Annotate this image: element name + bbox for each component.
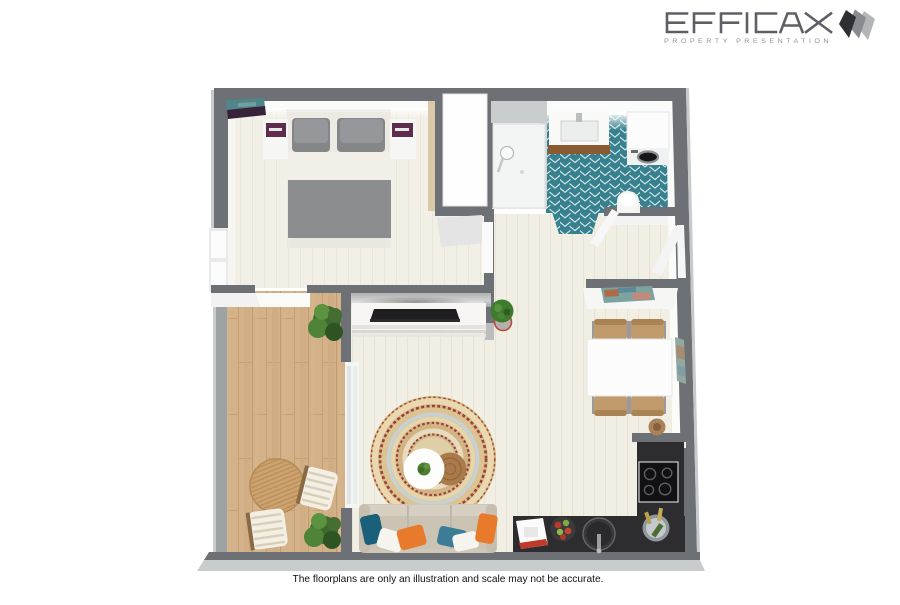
svg-text:The floorplans are only an ill: The floorplans are only an illustration … xyxy=(293,574,604,585)
svg-text:PROPERTY PRESENTATION: PROPERTY PRESENTATION xyxy=(664,38,832,45)
